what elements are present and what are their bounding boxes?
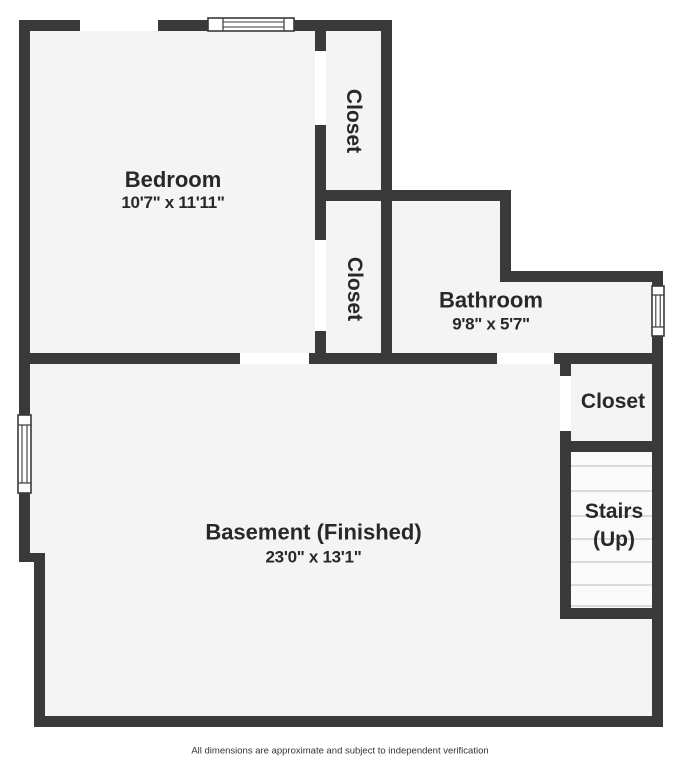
svg-text:Stairs: Stairs bbox=[585, 500, 643, 523]
svg-text:All dimensions are approximate: All dimensions are approximate and subje… bbox=[191, 746, 488, 757]
svg-text:Bedroom: Bedroom bbox=[125, 167, 222, 192]
svg-text:Closet: Closet bbox=[343, 257, 366, 321]
svg-text:10'7" x 11'11": 10'7" x 11'11" bbox=[121, 193, 224, 212]
svg-text:23'0" x 13'1": 23'0" x 13'1" bbox=[266, 548, 362, 567]
svg-text:Basement (Finished): Basement (Finished) bbox=[205, 520, 421, 545]
svg-text:Bathroom: Bathroom bbox=[439, 288, 543, 313]
svg-text:9'8" x 5'7": 9'8" x 5'7" bbox=[452, 315, 530, 334]
svg-text:Closet: Closet bbox=[342, 89, 365, 153]
svg-text:(Up): (Up) bbox=[593, 528, 635, 551]
svg-text:Closet: Closet bbox=[581, 390, 645, 413]
